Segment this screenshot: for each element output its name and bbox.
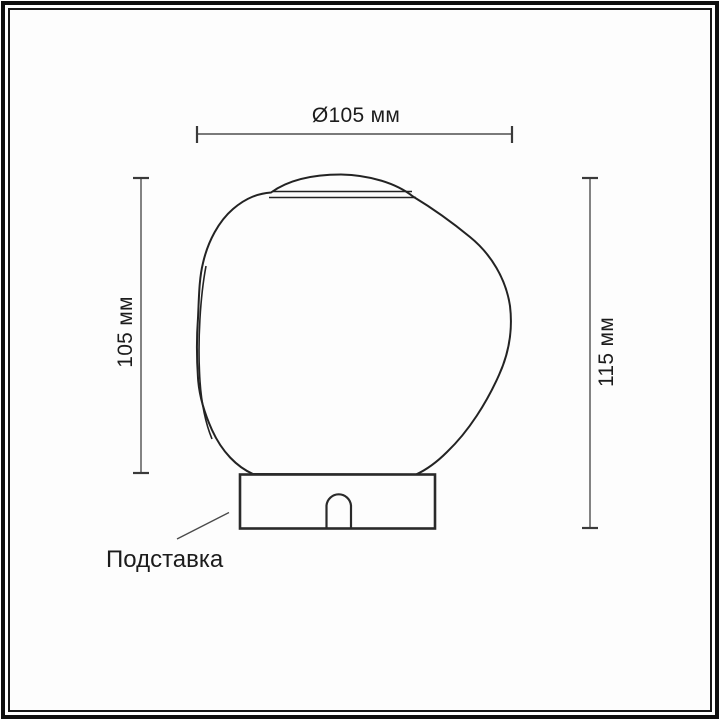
dimension-left-label: 105 мм bbox=[112, 262, 140, 402]
base-callout-label: Подставка bbox=[106, 546, 223, 574]
base-arch-cutout bbox=[327, 494, 352, 528]
base-callout-leader-line bbox=[177, 513, 229, 540]
dimension-top-label: Ø105 мм bbox=[256, 104, 456, 128]
dimension-top bbox=[197, 126, 512, 143]
lamp-base-rect bbox=[240, 475, 435, 529]
dimension-right-label: 115 мм bbox=[593, 282, 621, 422]
glass-dome-outline bbox=[197, 175, 511, 475]
